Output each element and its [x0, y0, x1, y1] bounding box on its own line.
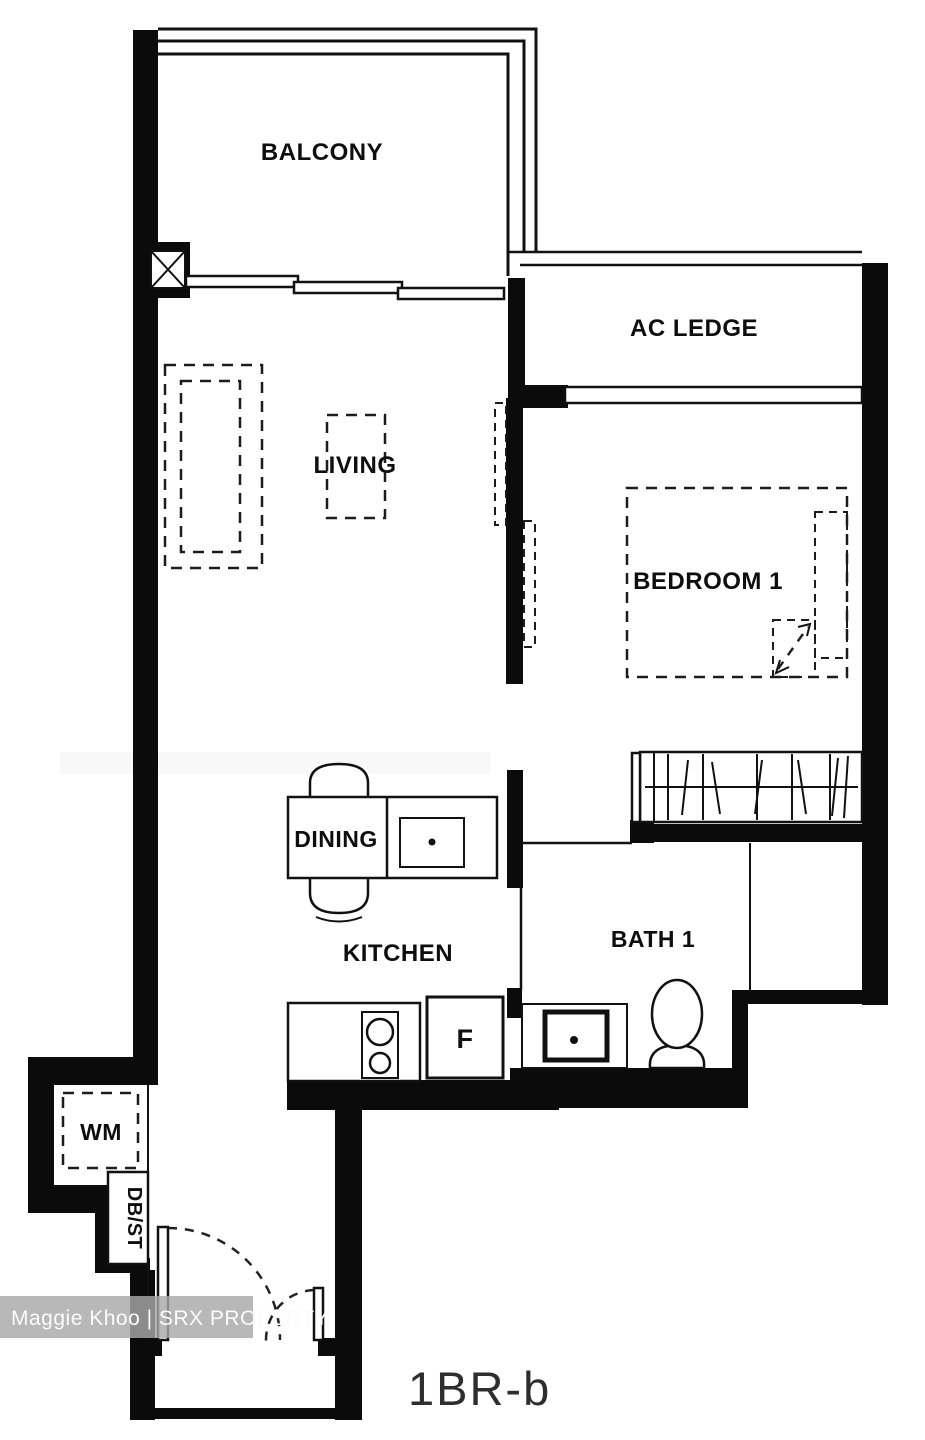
bedroom1-label: BEDROOM 1 [633, 568, 783, 595]
ac-ledge-label: AC LEDGE [630, 315, 758, 342]
sliding-panel [398, 288, 504, 299]
wall-segment [507, 770, 523, 888]
arrow-shaft [778, 627, 808, 669]
partition-panel [495, 403, 506, 525]
scan-artifact [60, 752, 490, 774]
sink-drain [429, 839, 436, 846]
walls [28, 30, 888, 1420]
db-st-label: DB/ST [123, 1187, 145, 1250]
swing-arrow [776, 624, 810, 673]
door-jamb [507, 988, 522, 1018]
chair [310, 878, 368, 913]
wall-segment [732, 990, 748, 1082]
sofa [165, 365, 262, 568]
washing-machine-label: WM [80, 1119, 122, 1145]
fridge-label: F [457, 1024, 474, 1054]
sliding-panel [186, 276, 298, 287]
balcony-label: BALCONY [261, 139, 383, 166]
floor-plan-page: BALCONY AC LEDGE LIVING BEDROOM 1 DINING… [0, 0, 925, 1440]
toilet-bowl [652, 980, 702, 1048]
door-jamb [630, 820, 654, 843]
basin-drain [570, 1036, 578, 1044]
watermark: Maggie Khoo | SRX PROPERTY [0, 1296, 329, 1338]
wall-segment [510, 1068, 748, 1108]
living-label: LIVING [313, 452, 396, 479]
wall-segment [133, 30, 158, 1085]
basin [545, 1012, 607, 1060]
bath-door-leaf [632, 753, 640, 822]
wall-segment [732, 990, 878, 1004]
sofa-outline [165, 365, 262, 568]
bedroom-window [565, 387, 862, 403]
wall-segment [148, 1408, 338, 1419]
floor-plan-drawing: BALCONY AC LEDGE LIVING BEDROOM 1 DINING… [0, 0, 925, 1440]
unit-type-title: 1BR-b [408, 1362, 551, 1415]
dining-label: DINING [294, 826, 378, 852]
arrow-head [798, 624, 810, 636]
wall-segment [506, 398, 523, 684]
wardrobe [640, 752, 862, 822]
chair-back-line [316, 917, 362, 922]
kitchen-counter [288, 1003, 420, 1081]
wall-segment [862, 263, 888, 1005]
sofa-seat [181, 381, 240, 552]
bath1-label: BATH 1 [611, 926, 695, 952]
chair [310, 764, 368, 797]
partition-panel [524, 521, 535, 647]
bath-fixtures [522, 980, 704, 1068]
sliding-panel [294, 282, 402, 293]
vent-box [151, 251, 185, 288]
kitchen-label: KITCHEN [343, 940, 453, 967]
watermark-text: Maggie Khoo | SRX PROPERTY [11, 1307, 329, 1330]
bedside-unit [815, 512, 847, 658]
window-jamb [508, 385, 568, 408]
wall-segment [636, 824, 862, 842]
wall-segment [335, 1092, 362, 1420]
wall-segment [28, 1057, 54, 1192]
balcony-sliding-door [186, 276, 504, 299]
